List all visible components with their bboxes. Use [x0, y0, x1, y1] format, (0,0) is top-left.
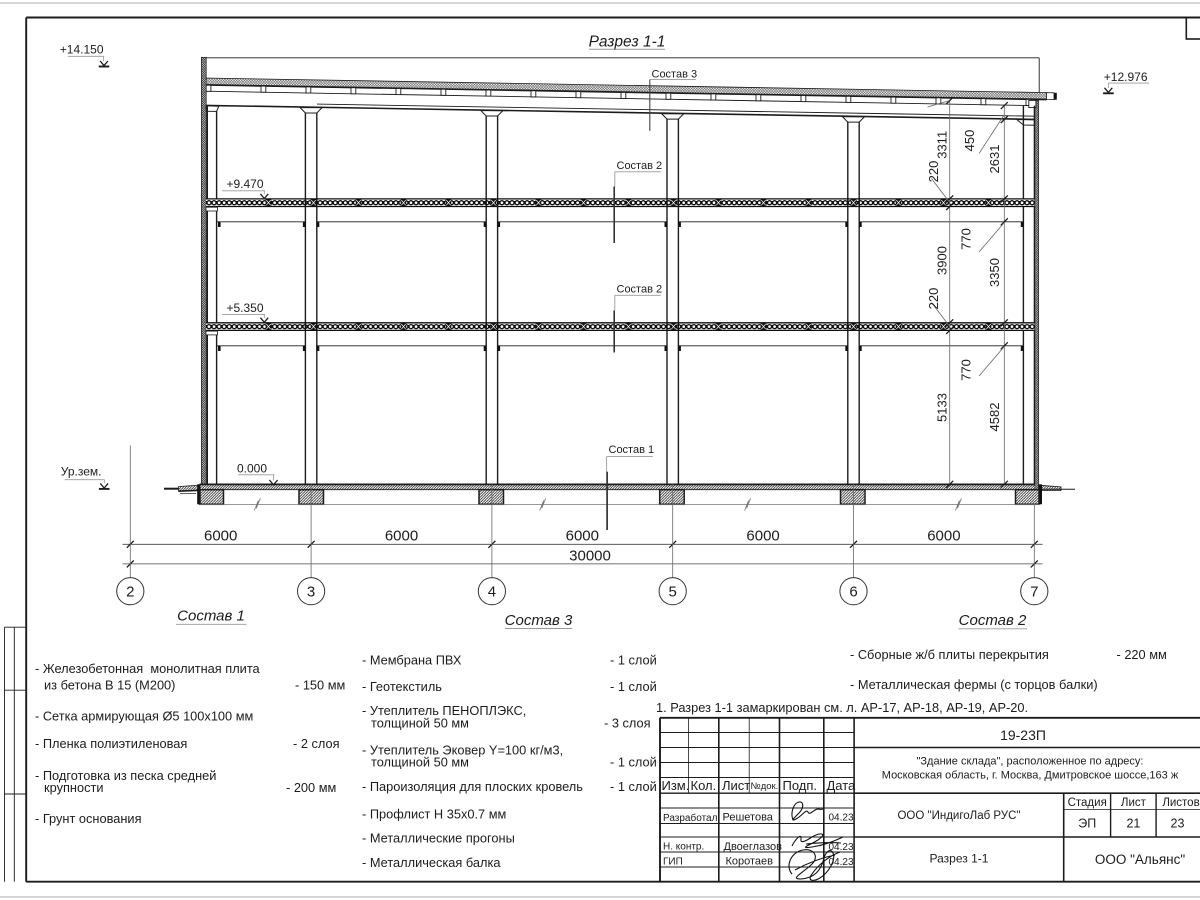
- svg-text:770: 770: [959, 359, 974, 381]
- svg-text:450: 450: [962, 130, 977, 152]
- svg-text:+14.150: +14.150: [60, 43, 104, 57]
- svg-text:- Металлическая фермы (с торцо: - Металлическая фермы (с торцов балки): [850, 677, 1098, 692]
- svg-text:Состав 3: Состав 3: [652, 69, 698, 81]
- svg-text:Лист: Лист: [722, 778, 750, 793]
- svg-text:3311: 3311: [935, 131, 950, 159]
- svg-text:6000: 6000: [204, 528, 237, 545]
- svg-text:Н. контр.: Н. контр.: [663, 842, 704, 853]
- svg-text:Состав 3: Состав 3: [505, 612, 573, 629]
- svg-text:- Железобетонная монолитная п: - Железобетонная монолитная плита: [35, 661, 261, 676]
- svg-text:3900: 3900: [935, 246, 950, 275]
- svg-text:- Геотекстиль: - Геотекстиль: [362, 679, 442, 694]
- svg-text:Стадия: Стадия: [1068, 797, 1107, 809]
- svg-text:Разрез 1-1: Разрез 1-1: [930, 852, 989, 866]
- svg-text:ГИП: ГИП: [663, 857, 683, 868]
- svg-text:3350: 3350: [987, 258, 1002, 287]
- svg-text:2631: 2631: [987, 145, 1002, 174]
- svg-text:- Профлист Н 35х0.7 мм: - Профлист Н 35х0.7 мм: [362, 806, 506, 821]
- svg-text:Коротаев: Коротаев: [726, 856, 774, 868]
- svg-text:23: 23: [1171, 817, 1185, 831]
- svg-text:Изм.: Изм.: [662, 778, 690, 793]
- svg-text:4582: 4582: [987, 403, 1002, 432]
- svg-text:220: 220: [926, 288, 941, 310]
- svg-text:+9.470: +9.470: [226, 177, 263, 191]
- svg-text:Состав 2: Состав 2: [959, 612, 1027, 629]
- svg-text:+5.350: +5.350: [226, 301, 263, 315]
- svg-text:7: 7: [1030, 584, 1038, 601]
- svg-text:21: 21: [1126, 817, 1140, 831]
- svg-text:толщиной 50 мм: толщиной 50 мм: [371, 754, 469, 769]
- svg-text:- 3 слоя: - 3 слоя: [604, 715, 651, 730]
- svg-text:0.000: 0.000: [237, 462, 267, 476]
- svg-text:толщиной 50 мм: толщиной 50 мм: [371, 715, 469, 730]
- svg-text:Московская область, г. Москва,: Московская область, г. Москва, Дмитровск…: [882, 770, 1179, 782]
- svg-text:- Грунт основания: - Грунт основания: [35, 811, 142, 826]
- svg-text:- Мембрана ПВХ: - Мембрана ПВХ: [362, 653, 462, 668]
- svg-text:2: 2: [126, 584, 134, 601]
- svg-text:Дата: Дата: [827, 778, 857, 793]
- svg-text:- Сборные ж/б плиты перекрытия: - Сборные ж/б плиты перекрытия: [850, 647, 1049, 662]
- svg-text:220: 220: [926, 161, 941, 183]
- svg-text:6000: 6000: [927, 528, 960, 545]
- svg-text:№док.: №док.: [751, 781, 779, 792]
- svg-text:- 1 слой: - 1 слой: [610, 779, 657, 794]
- svg-text:6000: 6000: [746, 528, 779, 545]
- svg-text:- 200 мм: - 200 мм: [286, 780, 336, 795]
- svg-text:крупности: крупности: [44, 780, 104, 795]
- svg-text:ЭП: ЭП: [1078, 817, 1096, 831]
- svg-text:Разработал: Разработал: [663, 812, 718, 824]
- svg-text:Состав 1: Состав 1: [177, 608, 245, 625]
- svg-text:Разрез 1-1: Разрез 1-1: [589, 34, 666, 51]
- svg-text:Состав 1: Состав 1: [609, 444, 655, 456]
- svg-text:4: 4: [488, 584, 496, 601]
- svg-text:5: 5: [669, 584, 677, 601]
- svg-text:04.23: 04.23: [829, 813, 854, 824]
- svg-text:- Пароизоляция для плоских кро: - Пароизоляция для плоских кровель: [362, 779, 583, 794]
- svg-text:Кол.: Кол.: [691, 778, 717, 793]
- svg-text:Решетова: Решетова: [723, 812, 774, 824]
- svg-text:- 1 слой: - 1 слой: [610, 653, 657, 668]
- svg-text:770: 770: [959, 228, 974, 250]
- svg-text:"Здание склада", расположенное: "Здание склада", расположенное по адресу…: [917, 756, 1144, 768]
- svg-text:- Металлические прогоны: - Металлические прогоны: [362, 831, 515, 846]
- svg-text:30000: 30000: [569, 547, 611, 564]
- svg-text:Подп.: Подп.: [783, 778, 818, 793]
- svg-text:- Сетка армирующая Ø5 100х100: - Сетка армирующая Ø5 100х100 мм: [35, 709, 253, 724]
- svg-text:Листов: Листов: [1162, 797, 1199, 809]
- svg-text:из бетона В 15 (М200): из бетона В 15 (М200): [44, 677, 175, 692]
- svg-text:- 1 слой: - 1 слой: [610, 679, 657, 694]
- svg-text:ООО "ИндигоЛаб РУС": ООО "ИндигоЛаб РУС": [897, 810, 1020, 822]
- svg-text:+12.976: +12.976: [1104, 70, 1148, 84]
- svg-text:3: 3: [307, 584, 315, 601]
- svg-text:5133: 5133: [935, 393, 950, 422]
- svg-text:- 2 слоя: - 2 слоя: [293, 736, 340, 751]
- svg-text:- 1 слой: - 1 слой: [610, 754, 657, 769]
- svg-text:- 220 мм: - 220 мм: [1117, 647, 1167, 662]
- svg-text:Состав 2: Состав 2: [617, 160, 663, 172]
- svg-text:1. Разрез 1-1 замаркирован см.: 1. Разрез 1-1 замаркирован см. л. АР-17,…: [656, 700, 1028, 715]
- svg-text:ООО "Альянс": ООО "Альянс": [1095, 852, 1185, 867]
- svg-text:6000: 6000: [385, 528, 418, 545]
- svg-text:- 150 мм: - 150 мм: [295, 677, 345, 692]
- svg-text:- Металлическая балка: - Металлическая балка: [362, 855, 501, 870]
- svg-text:Двоеглазов: Двоеглазов: [724, 841, 783, 853]
- svg-text:Лист: Лист: [1121, 797, 1147, 809]
- svg-text:6: 6: [849, 584, 857, 601]
- svg-text:Состав 2: Состав 2: [617, 283, 663, 295]
- svg-text:- Пленка полиэтиленовая: - Пленка полиэтиленовая: [35, 736, 187, 751]
- svg-text:6000: 6000: [566, 528, 599, 545]
- svg-text:19-23П: 19-23П: [1000, 727, 1046, 743]
- svg-text:Ур.зем.: Ур.зем.: [61, 465, 102, 479]
